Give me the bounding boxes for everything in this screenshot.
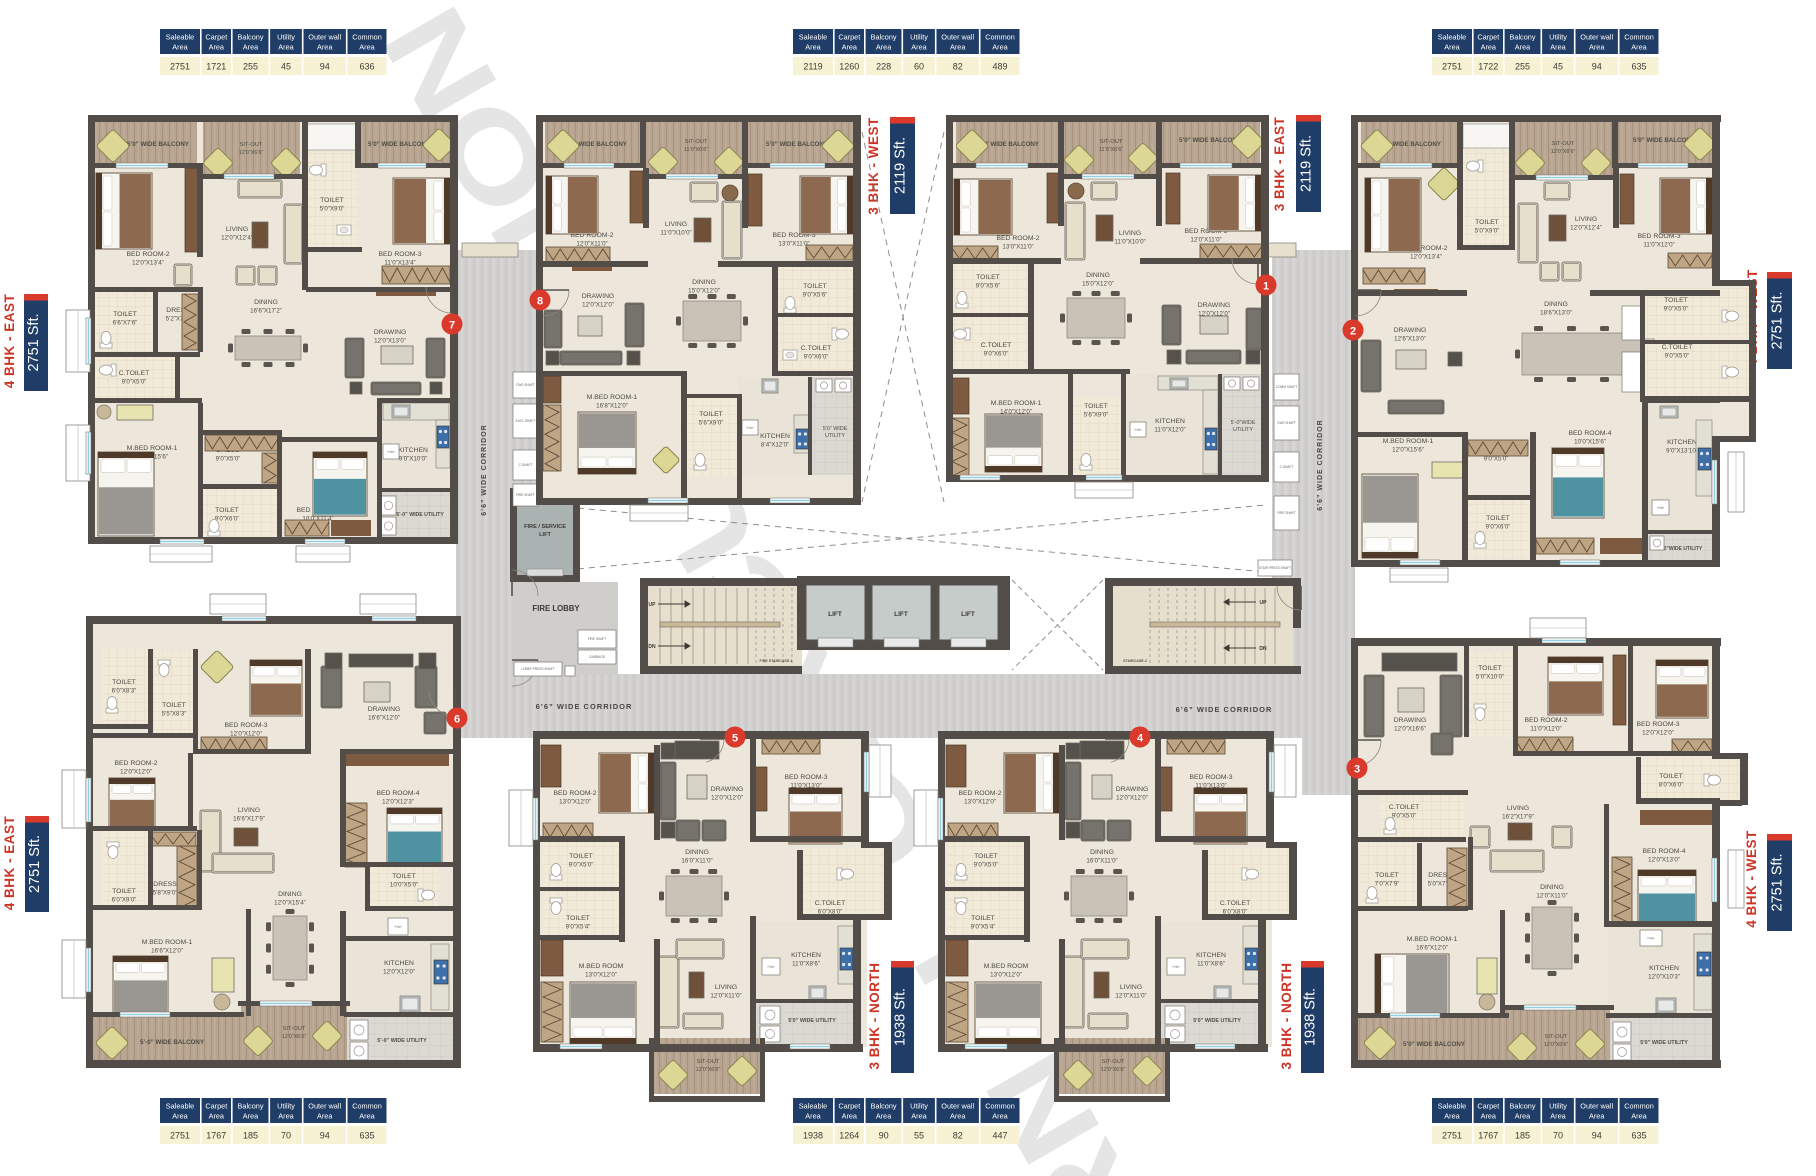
svg-text:8: 8 (537, 296, 543, 308)
svg-text:DRAWING: DRAWING (582, 293, 615, 300)
svg-text:Area: Area (1589, 43, 1605, 52)
svg-text:SIT-OUT: SIT-OUT (685, 139, 708, 145)
svg-text:Area: Area (1515, 1112, 1531, 1121)
svg-text:9’0”X5’0”: 9’0”X5’0” (1484, 456, 1509, 463)
svg-text:12’0”X13’0”: 12’0”X13’0” (374, 338, 406, 345)
svg-text:fridge: fridge (395, 925, 402, 929)
svg-text:5’0”X9’0”: 5’0”X9’0” (1475, 228, 1500, 235)
svg-text:5’0” WIDE UTILITY: 5’0” WIDE UTILITY (1640, 1040, 1688, 1046)
svg-text:12’0”X12’0”: 12’0”X12’0” (383, 969, 415, 976)
svg-text:C.TOILET: C.TOILET (119, 370, 149, 377)
svg-text:8’4”X12’0”: 8’4”X12’0” (761, 442, 789, 449)
svg-text:Area: Area (243, 1112, 259, 1121)
svg-text:4 BHK - EAST: 4 BHK - EAST (2, 815, 17, 910)
svg-text:fridge: fridge (1173, 965, 1180, 969)
svg-text:Utility: Utility (910, 1102, 928, 1111)
svg-text:CWS SHAFT: CWS SHAFT (516, 383, 535, 387)
svg-text:DRAWING: DRAWING (368, 706, 401, 713)
svg-text:TOILET: TOILET (1664, 297, 1688, 304)
svg-text:1938 Sft.: 1938 Sft. (893, 988, 909, 1046)
svg-text:Balcony: Balcony (1510, 1102, 1536, 1111)
svg-text:12’0”X6’6”: 12’0”X6’6” (282, 1034, 307, 1040)
svg-text:9’0”X13’10”: 9’0”X13’10” (1666, 448, 1698, 455)
svg-text:LIVING: LIVING (226, 226, 248, 233)
svg-text:Balcony: Balcony (871, 33, 897, 42)
svg-text:Area: Area (1444, 1112, 1460, 1121)
svg-text:11’0”X10’0”: 11’0”X10’0” (1114, 239, 1145, 246)
svg-text:Area: Area (1589, 1112, 1605, 1121)
svg-text:13’0”X12’0”: 13’0”X12’0” (559, 799, 591, 806)
svg-text:SIT-OUT: SIT-OUT (1552, 141, 1575, 147)
svg-text:Area: Area (1631, 43, 1647, 52)
svg-text:KITCHEN: KITCHEN (1649, 965, 1679, 972)
svg-text:82: 82 (953, 1131, 963, 1141)
svg-text:4 BHK - WEST: 4 BHK - WEST (1744, 830, 1759, 928)
svg-text:12’0”X12’0”: 12’0”X12’0” (1642, 730, 1674, 737)
svg-text:12’0”X13’0”: 12’0”X13’0” (1648, 857, 1680, 864)
svg-text:16’6”X12’0”: 16’6”X12’0” (368, 715, 400, 722)
svg-text:M.BED ROOM: M.BED ROOM (984, 963, 1029, 970)
svg-text:2751 Sft.: 2751 Sft. (1770, 853, 1786, 911)
svg-text:2751: 2751 (170, 1131, 190, 1141)
svg-text:5’0” WIDE BALCONY: 5’0” WIDE BALCONY (766, 141, 829, 148)
svg-text:fridge: fridge (768, 965, 775, 969)
svg-text:TOILET: TOILET (1375, 872, 1399, 879)
svg-text:9’0”X5’0”: 9’0”X5’0” (122, 379, 147, 386)
svg-text:Carpet: Carpet (838, 33, 860, 42)
svg-text:SIT-OUT: SIT-OUT (283, 1026, 306, 1032)
svg-text:BED ROOM-4: BED ROOM-4 (1642, 848, 1685, 855)
svg-text:5’0” WIDE UTILITY: 5’0” WIDE UTILITY (1193, 1018, 1241, 1024)
svg-text:Utility: Utility (1549, 33, 1567, 42)
svg-text:M.BED ROOM-1: M.BED ROOM-1 (1407, 936, 1458, 943)
svg-text:UTILITY: UTILITY (825, 433, 845, 439)
svg-text:Area: Area (359, 1112, 375, 1121)
svg-text:185: 185 (243, 1131, 258, 1141)
svg-text:94: 94 (320, 62, 330, 72)
svg-text:FIRE SHAFT: FIRE SHAFT (588, 637, 607, 641)
svg-text:13’0”X11’0”: 13’0”X11’0” (778, 241, 809, 248)
svg-text:12’0”X12’0”: 12’0”X12’0” (711, 795, 743, 802)
svg-text:Area: Area (1481, 1112, 1497, 1121)
svg-text:12’0”X12’4”: 12’0”X12’4” (1570, 225, 1602, 232)
svg-text:16’2”X17’9”: 16’2”X17’9” (1502, 814, 1534, 821)
svg-text:6’6”X7’6”: 6’6”X7’6” (113, 320, 138, 327)
svg-text:Carpet: Carpet (838, 1102, 860, 1111)
svg-text:Outer wall: Outer wall (1580, 1102, 1613, 1111)
svg-text:Area: Area (992, 1112, 1008, 1121)
svg-text:2: 2 (1350, 326, 1356, 338)
svg-text:1722: 1722 (1478, 62, 1498, 72)
svg-text:LIVING: LIVING (1119, 230, 1141, 237)
svg-text:Area: Area (172, 1112, 188, 1121)
svg-text:DINING: DINING (692, 279, 716, 286)
svg-text:60: 60 (914, 62, 924, 72)
svg-text:5’0” WIDE: 5’0” WIDE (823, 426, 848, 432)
svg-text:1938 Sft.: 1938 Sft. (1303, 988, 1319, 1046)
svg-text:KITCHEN: KITCHEN (398, 447, 428, 454)
svg-text:255: 255 (1515, 62, 1530, 72)
svg-text:ELEC SHAFT: ELEC SHAFT (516, 419, 536, 423)
svg-text:Area: Area (209, 43, 225, 52)
svg-text:C.TOILET: C.TOILET (981, 342, 1011, 349)
svg-text:16’6”X12’0”: 16’6”X12’0” (151, 948, 183, 955)
svg-text:16’0”X11’0”: 16’0”X11’0” (681, 858, 712, 865)
svg-text:94: 94 (320, 1131, 330, 1141)
svg-text:Saleable: Saleable (799, 1102, 827, 1111)
svg-text:SIT-OUT: SIT-OUT (1102, 1059, 1125, 1065)
svg-text:12’0”X11’0”: 12’0”X11’0” (710, 993, 741, 1000)
svg-text:Saleable: Saleable (1438, 33, 1466, 42)
svg-text:11’0”X6’6”: 11’0”X6’6” (684, 147, 708, 153)
svg-text:5’-0” WIDE UTILITY: 5’-0” WIDE UTILITY (396, 512, 444, 518)
svg-text:Area: Area (359, 43, 375, 52)
svg-text:DINING: DINING (1090, 849, 1114, 856)
svg-text:12’0”X6’6”: 12’0”X6’6” (1544, 1042, 1569, 1048)
svg-text:1767: 1767 (1478, 1131, 1498, 1141)
svg-text:9’0”X5’6”: 9’0”X5’6” (976, 283, 1001, 290)
svg-text:635: 635 (359, 1131, 374, 1141)
svg-text:FIRE / SERVICE: FIRE / SERVICE (524, 524, 566, 530)
svg-text:DRAWING: DRAWING (374, 329, 407, 336)
svg-text:M.BED ROOM-1: M.BED ROOM-1 (991, 400, 1042, 407)
svg-text:6’6” WIDE CORRIDOR: 6’6” WIDE CORRIDOR (1317, 419, 1324, 511)
svg-text:15’0”X12’0”: 15’0”X12’0” (1082, 281, 1114, 288)
svg-text:Saleable: Saleable (1438, 1102, 1466, 1111)
svg-text:4 BHK - EAST: 4 BHK - EAST (2, 293, 17, 388)
svg-text:LIVING: LIVING (238, 807, 260, 814)
svg-text:STAIR PRESS SHAFT: STAIR PRESS SHAFT (1259, 566, 1291, 570)
svg-text:FIRE STAIRCASE-1: FIRE STAIRCASE-1 (760, 659, 793, 663)
svg-text:5’0” WIDE UTILITY: 5’0” WIDE UTILITY (788, 1018, 836, 1024)
svg-text:Area: Area (278, 43, 294, 52)
svg-text:13’0”X12’0”: 13’0”X12’0” (964, 799, 996, 806)
svg-text:9’-0”WIDE UTILITY: 9’-0”WIDE UTILITY (1658, 546, 1703, 552)
svg-text:Utility: Utility (910, 33, 928, 42)
svg-text:11’0”X10’0”: 11’0”X10’0” (660, 230, 691, 237)
svg-text:5’-0”WIDE: 5’-0”WIDE (1231, 420, 1256, 426)
svg-text:9’0”X5’0”: 9’0”X5’0” (1665, 353, 1690, 360)
svg-text:16’8”X12’0”: 16’8”X12’0” (596, 403, 628, 410)
svg-text:Area: Area (1550, 43, 1566, 52)
svg-text:M.BED ROOM-1: M.BED ROOM-1 (127, 445, 178, 452)
svg-text:1938: 1938 (803, 1131, 823, 1141)
svg-text:3 BHK - NORTH: 3 BHK - NORTH (867, 963, 882, 1070)
svg-text:3 BHK - NORTH: 3 BHK - NORTH (1279, 963, 1294, 1070)
svg-text:STAIRCASE-2: STAIRCASE-2 (1123, 659, 1147, 663)
svg-text:12’0”X13’4”: 12’0”X13’4” (132, 260, 164, 267)
svg-text:Area: Area (911, 43, 927, 52)
svg-text:2751 Sft.: 2751 Sft. (26, 313, 42, 371)
svg-text:LIVING: LIVING (665, 221, 687, 228)
svg-text:TOILET: TOILET (976, 274, 1000, 281)
svg-text:6: 6 (454, 714, 460, 726)
svg-text:SIT-OUT: SIT-OUT (1100, 139, 1123, 145)
svg-text:Utility: Utility (1549, 1102, 1567, 1111)
svg-text:KITCHEN: KITCHEN (1155, 418, 1185, 425)
svg-text:11’0”X8’6”: 11’0”X8’6” (1197, 961, 1225, 968)
svg-text:12’0”X11’0”: 12’0”X11’0” (1115, 993, 1146, 1000)
svg-text:12’0”X10’3”: 12’0”X10’3” (1648, 974, 1680, 981)
svg-text:C.TOILET: C.TOILET (1662, 344, 1692, 351)
svg-text:12’0”X12’4”: 12’0”X12’4” (221, 235, 253, 242)
svg-text:90: 90 (879, 1131, 889, 1141)
svg-text:3: 3 (1354, 764, 1360, 776)
svg-text:Area: Area (842, 1112, 858, 1121)
svg-text:Common: Common (1624, 1102, 1654, 1111)
svg-text:LIVING: LIVING (715, 984, 737, 991)
svg-text:2119: 2119 (803, 62, 822, 72)
svg-text:LIFT: LIFT (961, 611, 975, 618)
svg-text:KITCHEN: KITCHEN (791, 952, 821, 959)
svg-text:fridge: fridge (1648, 936, 1655, 940)
svg-text:Area: Area (805, 1112, 821, 1121)
svg-text:12’0”X12’0”: 12’0”X12’0” (120, 769, 152, 776)
svg-text:9’0”X6’0”: 9’0”X6’0” (984, 351, 1009, 358)
svg-text:9’0”X5’0”: 9’0”X5’0” (569, 862, 594, 869)
svg-text:5’0”X9’0”: 5’0”X9’0” (320, 206, 345, 213)
svg-text:Outer wall: Outer wall (1580, 33, 1613, 42)
svg-text:11’0”X6’6”: 11’0”X6’6” (1099, 147, 1123, 153)
svg-text:KITCHEN: KITCHEN (1196, 952, 1226, 959)
svg-text:2751: 2751 (1442, 1131, 1462, 1141)
svg-text:GARBAGE: GARBAGE (589, 655, 605, 659)
svg-text:9’0”X6’0”: 9’0”X6’0” (1486, 524, 1511, 531)
svg-text:55: 55 (914, 1131, 924, 1141)
svg-text:Area: Area (1515, 43, 1531, 52)
svg-text:Area: Area (1444, 43, 1460, 52)
svg-text:BED ROOM-3: BED ROOM-3 (1636, 721, 1679, 728)
svg-text:TOILET: TOILET (974, 853, 998, 860)
svg-text:DINING: DINING (1540, 884, 1564, 891)
svg-text:Carpet: Carpet (205, 33, 227, 42)
svg-text:BED ROOM-3: BED ROOM-3 (378, 251, 421, 258)
svg-text:TOILET: TOILET (162, 702, 186, 709)
svg-text:TOILET: TOILET (1486, 515, 1510, 522)
svg-text:DN: DN (648, 644, 656, 650)
svg-text:16’6”X17’2”: 16’6”X17’2” (250, 308, 282, 315)
svg-text:Saleable: Saleable (799, 33, 827, 42)
svg-text:DRAWING: DRAWING (1394, 327, 1427, 334)
svg-text:Utility: Utility (277, 33, 295, 42)
svg-text:SIT-OUT: SIT-OUT (697, 1059, 720, 1065)
svg-text:45: 45 (1553, 62, 1563, 72)
svg-text:C.TOILET: C.TOILET (1389, 804, 1419, 811)
svg-text:Common: Common (352, 33, 382, 42)
svg-text:LIVING: LIVING (1507, 805, 1529, 812)
svg-text:Area: Area (209, 1112, 225, 1121)
svg-text:fridge: fridge (1657, 506, 1664, 510)
svg-text:12’0”X6’6”: 12’0”X6’6” (1551, 149, 1576, 155)
svg-text:DINING: DINING (278, 891, 302, 898)
svg-text:BED ROOM-2: BED ROOM-2 (114, 760, 157, 767)
svg-text:TOILET: TOILET (320, 197, 344, 204)
svg-text:1260: 1260 (839, 62, 859, 72)
svg-text:BED ROOM-2: BED ROOM-2 (553, 790, 596, 797)
svg-text:DRAWING: DRAWING (1394, 717, 1427, 724)
svg-text:LOBBY PRESS SHAFT: LOBBY PRESS SHAFT (521, 667, 555, 671)
svg-text:DINING: DINING (685, 849, 709, 856)
svg-text:447: 447 (992, 1131, 1007, 1141)
svg-text:Saleable: Saleable (166, 1102, 194, 1111)
svg-text:5’-0” WIDE BALCONY: 5’-0” WIDE BALCONY (140, 1039, 205, 1046)
svg-text:255: 255 (243, 62, 258, 72)
svg-text:C.TOILET: C.TOILET (801, 345, 831, 352)
svg-text:TOILET: TOILET (113, 311, 137, 318)
svg-text:13’0”X11’0”: 13’0”X11’0” (1002, 244, 1033, 251)
svg-text:Saleable: Saleable (166, 33, 194, 42)
svg-text:Area: Area (1550, 1112, 1566, 1121)
svg-text:9’0”X10’0”: 9’0”X10’0” (399, 456, 427, 463)
svg-text:Outer wall: Outer wall (308, 1102, 341, 1111)
svg-text:Area: Area (950, 1112, 966, 1121)
svg-text:BED ROOM-2: BED ROOM-2 (958, 790, 1001, 797)
svg-text:TOILET: TOILET (803, 283, 827, 290)
svg-text:TOILET: TOILET (566, 915, 590, 922)
svg-text:Outer wall: Outer wall (308, 33, 341, 42)
svg-text:BED ROOM-3: BED ROOM-3 (1189, 774, 1232, 781)
svg-text:UP: UP (1260, 600, 1268, 606)
svg-text:TOILET: TOILET (215, 507, 239, 514)
svg-text:DN: DN (1259, 646, 1267, 652)
svg-text:489: 489 (992, 62, 1007, 72)
svg-text:16’6”X12’0”: 16’6”X12’0” (1416, 945, 1448, 952)
svg-text:2751: 2751 (1442, 62, 1462, 72)
svg-text:185: 185 (1515, 1131, 1530, 1141)
svg-text:LIFT: LIFT (828, 611, 842, 618)
svg-text:2751 Sft.: 2751 Sft. (1770, 291, 1786, 349)
svg-text:6’6” WIDE CORRIDOR: 6’6” WIDE CORRIDOR (536, 702, 633, 711)
svg-text:2751 Sft.: 2751 Sft. (27, 835, 43, 893)
svg-text:Common: Common (985, 33, 1015, 42)
svg-text:CWS SHAFT: CWS SHAFT (1277, 421, 1296, 425)
svg-text:11’0”X12’0”: 11’0”X12’0” (1643, 242, 1674, 249)
svg-text:SIT-OUT: SIT-OUT (240, 142, 263, 148)
svg-text:9’0”X5’4”: 9’0”X5’4” (566, 924, 591, 931)
svg-text:8’0”X6’0”: 8’0”X6’0” (1659, 782, 1684, 789)
svg-text:M.BED ROOM-1: M.BED ROOM-1 (587, 394, 638, 401)
svg-text:5’5”X8’3”: 5’5”X8’3” (162, 711, 187, 718)
svg-text:9’0”X5’0”: 9’0”X5’0” (974, 862, 999, 869)
svg-text:2119 Sft.: 2119 Sft. (1299, 135, 1315, 192)
svg-text:Area: Area (992, 43, 1008, 52)
svg-text:Area: Area (243, 43, 259, 52)
svg-text:9’0”X5’0”: 9’0”X5’0” (1664, 306, 1689, 313)
svg-text:5’0”X10’0”: 5’0”X10’0” (1476, 674, 1504, 681)
svg-text:12’0”X11’0”: 12’0”X11’0” (1190, 237, 1221, 244)
svg-text:UTILITY: UTILITY (1233, 427, 1253, 433)
svg-text:FIRE LOBBY: FIRE LOBBY (532, 604, 580, 613)
svg-text:COMM SHAFT: COMM SHAFT (1276, 385, 1297, 389)
svg-text:6’6” WIDE CORRIDOR: 6’6” WIDE CORRIDOR (1176, 705, 1273, 714)
svg-text:BED ROOM-3: BED ROOM-3 (224, 722, 267, 729)
svg-text:12’0”X15’4”: 12’0”X15’4” (274, 900, 306, 907)
svg-text:BED ROOM-4: BED ROOM-4 (1568, 430, 1611, 437)
svg-text:1721: 1721 (206, 62, 226, 72)
svg-text:7’0”X7’9”: 7’0”X7’9” (1375, 881, 1400, 888)
svg-text:Common: Common (985, 1102, 1015, 1111)
svg-text:C-SHAFT: C-SHAFT (519, 463, 533, 467)
svg-text:45: 45 (281, 62, 291, 72)
svg-text:M.BED ROOM-1: M.BED ROOM-1 (1383, 438, 1434, 445)
svg-text:3 BHK - WEST: 3 BHK - WEST (866, 117, 881, 215)
svg-text:LIVING: LIVING (1575, 216, 1597, 223)
svg-text:Utility: Utility (277, 1102, 295, 1111)
svg-text:635: 635 (1631, 62, 1646, 72)
svg-text:Carpet: Carpet (1477, 1102, 1499, 1111)
svg-text:DRAWING: DRAWING (711, 786, 744, 793)
svg-text:TOILET: TOILET (112, 679, 136, 686)
svg-text:12’0”X6’6”: 12’0”X6’6” (239, 150, 264, 156)
svg-text:TOILET: TOILET (1478, 665, 1502, 672)
svg-text:Area: Area (278, 1112, 294, 1121)
svg-text:Area: Area (911, 1112, 927, 1121)
svg-text:C.TOILET: C.TOILET (815, 900, 845, 907)
svg-text:TOILET: TOILET (112, 888, 136, 895)
svg-text:TOILET: TOILET (392, 873, 416, 880)
svg-text:Carpet: Carpet (1477, 33, 1499, 42)
svg-text:LIFT: LIFT (539, 532, 551, 538)
svg-text:5’6”X9’0”: 5’6”X9’0” (1084, 412, 1109, 419)
svg-text:Area: Area (1631, 1112, 1647, 1121)
svg-text:fridge: fridge (388, 450, 395, 454)
svg-text:Balcony: Balcony (871, 1102, 897, 1111)
svg-text:Area: Area (842, 43, 858, 52)
svg-text:4: 4 (1137, 733, 1144, 745)
svg-text:9’0”X5’0”: 9’0”X5’0” (1392, 813, 1417, 820)
svg-text:3 BHK - EAST: 3 BHK - EAST (1272, 116, 1287, 211)
svg-text:M.BED ROOM: M.BED ROOM (579, 963, 624, 970)
svg-text:Area: Area (805, 43, 821, 52)
svg-text:1: 1 (1263, 281, 1269, 293)
svg-text:7: 7 (449, 320, 455, 332)
svg-text:13’0”X12’0”: 13’0”X12’0” (990, 972, 1022, 979)
svg-text:TOILET: TOILET (699, 411, 723, 418)
svg-text:11’0”X12’0”: 11’0”X12’0” (1154, 427, 1185, 434)
svg-text:Outer wall: Outer wall (941, 33, 974, 42)
svg-text:5’0” WIDE BALCONY: 5’0” WIDE BALCONY (1403, 1041, 1466, 1048)
svg-text:12’0”X6’6”: 12’0”X6’6” (696, 1067, 721, 1073)
svg-text:12’0”X12’0”: 12’0”X12’0” (582, 302, 614, 309)
svg-text:BED ROOM-3: BED ROOM-3 (784, 774, 827, 781)
svg-text:10’0”X5’0”: 10’0”X5’0” (390, 882, 418, 889)
svg-text:636: 636 (359, 62, 374, 72)
svg-text:Outer wall: Outer wall (941, 1102, 974, 1111)
svg-text:9’0”X5’6”: 9’0”X5’6” (803, 292, 828, 299)
svg-text:5’8”X9’0”: 5’8”X9’0” (153, 890, 178, 897)
svg-text:Area: Area (1481, 43, 1497, 52)
svg-text:DRESS: DRESS (153, 881, 177, 888)
svg-text:M.BED ROOM-1: M.BED ROOM-1 (142, 939, 193, 946)
svg-text:12’0”X6’6”: 12’0”X6’6” (1101, 1067, 1126, 1073)
svg-text:BED ROOM-2: BED ROOM-2 (1524, 717, 1567, 724)
svg-text:82: 82 (953, 62, 963, 72)
svg-text:9’0”X6’0”: 9’0”X6’0” (804, 354, 829, 361)
svg-text:LIFT: LIFT (894, 611, 908, 618)
svg-text:Area: Area (317, 43, 333, 52)
svg-text:9’0”X5’4”: 9’0”X5’4” (971, 924, 996, 931)
svg-text:5’6”X9’0”: 5’6”X9’0” (699, 420, 724, 427)
svg-text:BED ROOM-2: BED ROOM-2 (126, 251, 169, 258)
svg-text:Area: Area (876, 43, 892, 52)
svg-text:Common: Common (1624, 33, 1654, 42)
svg-text:TOILET: TOILET (1659, 773, 1683, 780)
svg-text:94: 94 (1592, 1131, 1602, 1141)
svg-text:fridge: fridge (1135, 428, 1142, 432)
svg-text:6’6” WIDE CORRIDOR: 6’6” WIDE CORRIDOR (481, 424, 488, 516)
svg-text:12’0”X12’3”: 12’0”X12’3” (382, 799, 414, 806)
svg-text:TOILET: TOILET (569, 853, 593, 860)
